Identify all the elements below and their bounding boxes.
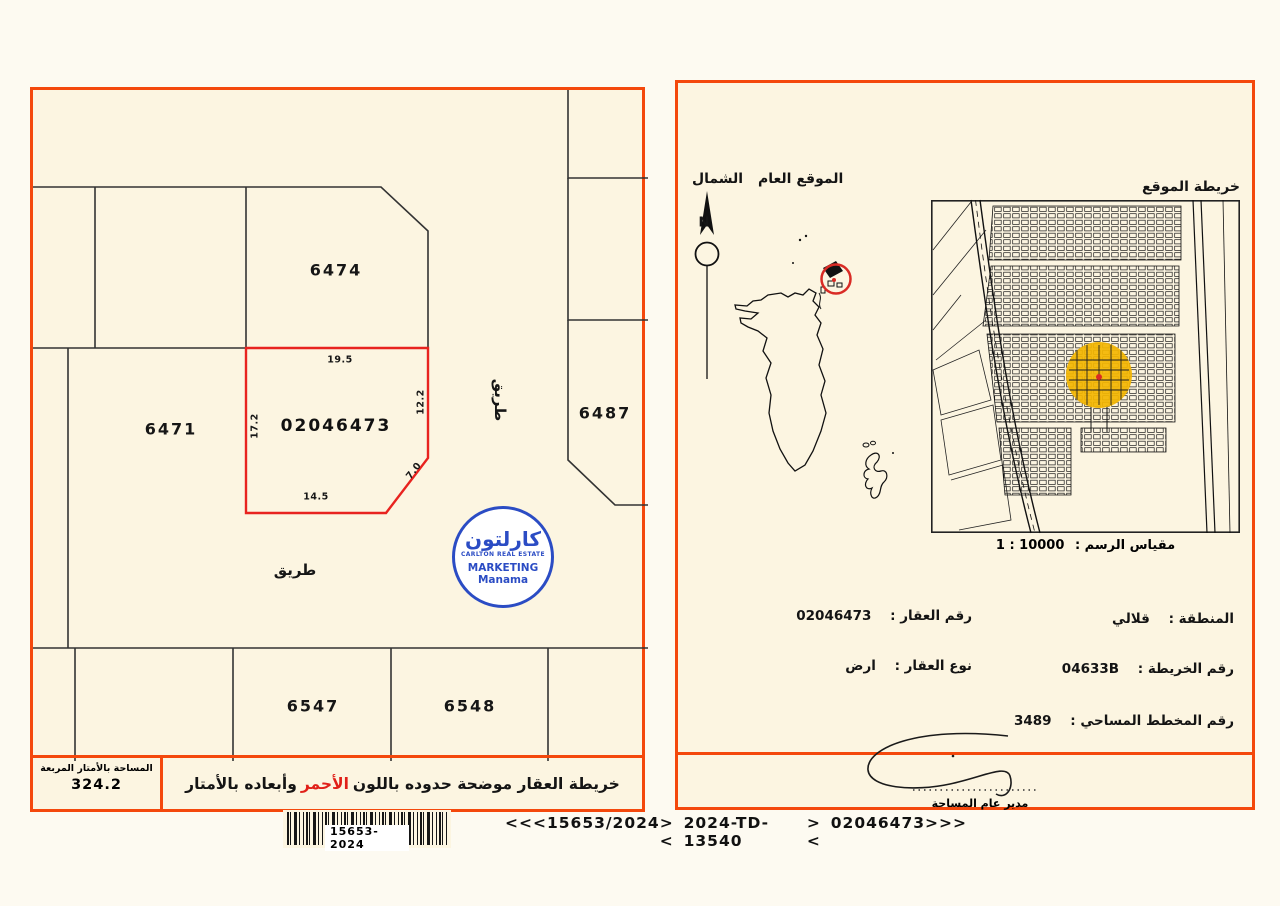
reference-code-strip: <<< 15653/2024 >< 2024-TD-13540 >< 02046… — [505, 814, 967, 850]
subject-plot-number: 02046473 — [281, 416, 392, 436]
islet-1 — [863, 443, 869, 447]
detail-property-type: نوع العقار : ارض — [845, 658, 972, 674]
road-label-horizontal: طريق — [274, 561, 317, 579]
code-separator-1: >< — [660, 814, 684, 850]
code-case-number: 15653/2024 — [547, 814, 660, 850]
parcel-number-6474: 6474 — [310, 261, 363, 280]
map-caption-bar: خريطة العقار موضحة حدوده باللون الأحمر و… — [163, 758, 642, 809]
property-type-value: ارض — [845, 658, 876, 674]
dimension-left: 17.2 — [250, 413, 261, 438]
site-marker-dot — [832, 278, 836, 282]
region-value: قلالي — [1112, 611, 1150, 627]
north-label: الشمال — [692, 171, 743, 187]
map-footer-row: المساحة بالأمتار المربعة 324.2 خريطة الع… — [33, 755, 642, 809]
parcel-number-6547: 6547 — [287, 697, 340, 716]
detail-property-number: رقم العقار : 02046473 — [796, 608, 972, 624]
plot-map-panel: 6474 6471 6487 6547 6548 02046473 19.5 1… — [30, 87, 645, 812]
logo-city-line: Manama — [478, 574, 528, 586]
scanned-survey-document: 6474 6471 6487 6547 6548 02046473 19.5 1… — [0, 0, 1280, 906]
area-value: 324.2 — [33, 777, 160, 793]
code-property-number: 02046473 — [831, 814, 925, 850]
caption-suffix: وأبعاده بالأمتار — [185, 775, 297, 793]
dimension-top: 19.5 — [327, 355, 352, 366]
map-number-value: 04633B — [1062, 661, 1119, 677]
barcode: 15653-2024 — [283, 810, 451, 848]
location-info-panel: الشمال الموقع العام خريطة الموقع N — [675, 80, 1255, 755]
logo-arabic-name: كارلتون — [465, 528, 541, 550]
hawar-islands-outline — [864, 453, 887, 498]
logo-marketing-line: MARKETING — [468, 562, 538, 574]
signature — [858, 726, 1078, 806]
scale-row: مقياس الرسم : 1 : 10000 — [931, 538, 1240, 553]
caption-highlight-red: الأحمر — [301, 775, 349, 793]
parcel-number-6548: 6548 — [444, 697, 497, 716]
bahrain-overview-map — [733, 223, 928, 523]
road-label-vertical: طريق — [491, 379, 509, 422]
site-exact-dot — [1096, 374, 1102, 380]
property-number-label: رقم العقار : — [890, 608, 972, 624]
signature-dot — [952, 755, 955, 758]
map-number-label: رقم الخريطة : — [1138, 661, 1234, 677]
caption-prefix: خريطة العقار موضحة حدوده باللون — [353, 775, 620, 793]
barcode-number: 15653-2024 — [325, 825, 409, 851]
general-location-label: الموقع العام — [758, 171, 843, 187]
signature-stroke — [868, 734, 1011, 796]
code-transaction-number: 2024-TD-13540 — [684, 814, 807, 850]
code-arrows-left: <<< — [505, 814, 547, 850]
code-arrows-right: >>> — [925, 814, 967, 850]
signatory-title: مدير عام المساحة — [900, 797, 1060, 810]
islet-2 — [871, 441, 876, 445]
property-type-label: نوع العقار : — [895, 658, 972, 674]
detail-region: المنطقة : قلالي — [1112, 611, 1234, 627]
location-map-label: خريطة الموقع — [1142, 179, 1240, 195]
scale-label: مقياس الرسم : — [1075, 538, 1175, 553]
main-island-outline — [735, 289, 826, 471]
dimension-bottom: 14.5 — [303, 492, 328, 503]
survey-plan-label: رقم المخطط المساحي : — [1070, 713, 1234, 729]
detail-map-number: رقم الخريطة : 04633B — [1062, 661, 1234, 677]
area-label: المساحة بالأمتار المربعة — [33, 763, 160, 774]
compass-circle — [696, 243, 719, 266]
logo-subtitle: CARLTON REAL ESTATE — [461, 551, 545, 558]
code-separator-2: >< — [807, 814, 831, 850]
area-box: المساحة بالأمتار المربعة 324.2 — [33, 758, 163, 809]
site-detail-map — [931, 200, 1240, 533]
carlton-logo: كارلتون CARLTON REAL ESTATE MARKETING Ma… — [452, 506, 554, 608]
property-number-value: 02046473 — [796, 608, 871, 624]
parcel-number-6487: 6487 — [579, 404, 632, 423]
scale-value: 1 : 10000 — [996, 538, 1065, 553]
compass-letter: N — [699, 216, 710, 231]
region-label: المنطقة : — [1169, 611, 1234, 627]
parcel-number-6471: 6471 — [145, 420, 198, 439]
dimension-right: 12.2 — [416, 389, 427, 414]
